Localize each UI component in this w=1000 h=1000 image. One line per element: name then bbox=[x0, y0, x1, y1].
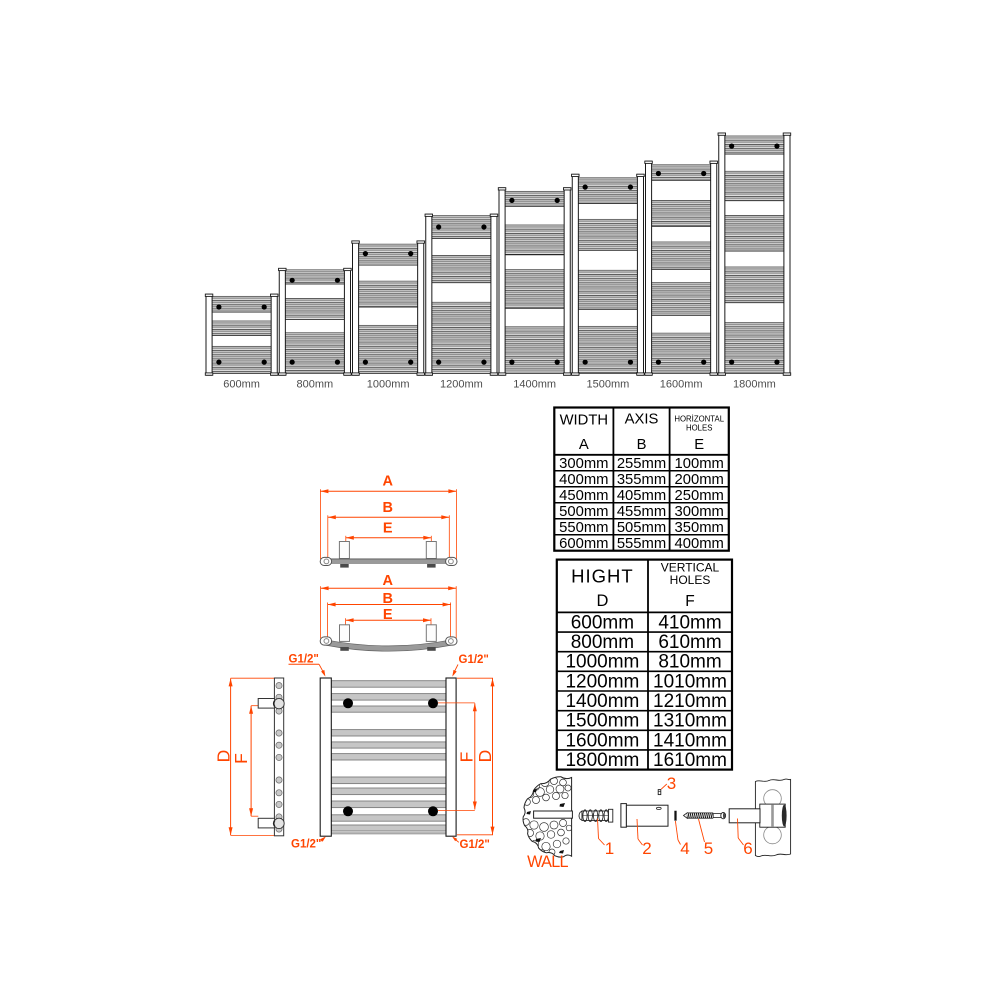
svg-text:3: 3 bbox=[667, 774, 676, 793]
svg-text:505mm: 505mm bbox=[617, 520, 666, 536]
svg-text:810mm: 810mm bbox=[658, 652, 721, 673]
svg-text:1500mm: 1500mm bbox=[565, 711, 639, 732]
svg-text:455mm: 455mm bbox=[617, 504, 666, 520]
svg-text:400mm: 400mm bbox=[675, 536, 724, 552]
svg-text:D: D bbox=[596, 592, 608, 610]
svg-text:355mm: 355mm bbox=[617, 472, 666, 488]
svg-text:400mm: 400mm bbox=[559, 472, 608, 488]
svg-text:AXIS: AXIS bbox=[625, 412, 659, 428]
svg-text:600mm: 600mm bbox=[223, 379, 260, 391]
svg-text:A: A bbox=[382, 474, 393, 490]
svg-text:800mm: 800mm bbox=[571, 632, 634, 653]
svg-text:500mm: 500mm bbox=[559, 504, 608, 520]
svg-text:B: B bbox=[382, 500, 392, 516]
svg-text:WIDTH: WIDTH bbox=[560, 413, 609, 429]
svg-text:F: F bbox=[231, 753, 251, 764]
svg-text:G1/2": G1/2" bbox=[459, 654, 489, 666]
svg-text:550mm: 550mm bbox=[559, 520, 608, 536]
svg-text:200mm: 200mm bbox=[675, 472, 724, 488]
svg-text:HOLES: HOLES bbox=[686, 424, 712, 433]
svg-text:F: F bbox=[685, 593, 694, 610]
svg-text:G1/2": G1/2" bbox=[289, 653, 319, 665]
svg-text:405mm: 405mm bbox=[617, 488, 666, 504]
svg-text:HIGHT: HIGHT bbox=[571, 566, 634, 587]
svg-text:1410mm: 1410mm bbox=[653, 730, 727, 751]
svg-text:D: D bbox=[475, 750, 495, 763]
svg-text:255mm: 255mm bbox=[617, 456, 666, 472]
svg-text:1400mm: 1400mm bbox=[513, 379, 556, 391]
svg-text:F: F bbox=[457, 752, 477, 763]
svg-text:1200mm: 1200mm bbox=[440, 379, 483, 391]
svg-text:1210mm: 1210mm bbox=[653, 691, 727, 712]
svg-text:1800mm: 1800mm bbox=[733, 379, 776, 391]
svg-text:2: 2 bbox=[642, 839, 651, 858]
svg-text:1000mm: 1000mm bbox=[367, 379, 410, 391]
svg-text:B: B bbox=[637, 437, 647, 453]
svg-text:300mm: 300mm bbox=[559, 456, 608, 472]
svg-text:1400mm: 1400mm bbox=[565, 691, 639, 712]
svg-text:555mm: 555mm bbox=[617, 536, 666, 552]
svg-text:6: 6 bbox=[743, 839, 752, 858]
svg-text:300mm: 300mm bbox=[675, 504, 724, 520]
svg-text:350mm: 350mm bbox=[675, 520, 724, 536]
svg-text:600mm: 600mm bbox=[571, 612, 634, 633]
svg-text:1010mm: 1010mm bbox=[653, 671, 727, 692]
svg-text:A: A bbox=[579, 437, 589, 453]
svg-text:1310mm: 1310mm bbox=[653, 711, 727, 732]
svg-text:1610mm: 1610mm bbox=[653, 750, 727, 771]
svg-text:410mm: 410mm bbox=[658, 612, 721, 633]
svg-text:E: E bbox=[694, 437, 704, 453]
svg-text:E: E bbox=[383, 521, 393, 537]
svg-text:1600mm: 1600mm bbox=[565, 730, 639, 751]
svg-text:5: 5 bbox=[704, 839, 713, 858]
svg-text:1800mm: 1800mm bbox=[565, 750, 639, 771]
svg-text:G1/2": G1/2" bbox=[460, 839, 490, 851]
svg-text:800mm: 800mm bbox=[297, 379, 334, 391]
svg-text:HOLES: HOLES bbox=[670, 573, 711, 587]
svg-text:WALL: WALL bbox=[527, 853, 568, 871]
svg-text:4: 4 bbox=[680, 839, 689, 858]
svg-text:1600mm: 1600mm bbox=[660, 379, 703, 391]
svg-text:450mm: 450mm bbox=[559, 488, 608, 504]
svg-text:250mm: 250mm bbox=[675, 488, 724, 504]
svg-text:HORİZONTAL: HORİZONTAL bbox=[674, 415, 724, 424]
svg-text:600mm: 600mm bbox=[559, 536, 608, 552]
svg-text:610mm: 610mm bbox=[658, 632, 721, 653]
svg-text:A: A bbox=[382, 573, 393, 589]
svg-text:1000mm: 1000mm bbox=[565, 652, 639, 673]
svg-text:1500mm: 1500mm bbox=[586, 379, 629, 391]
svg-text:1: 1 bbox=[605, 839, 614, 858]
svg-text:100mm: 100mm bbox=[675, 456, 724, 472]
svg-text:1200mm: 1200mm bbox=[565, 671, 639, 692]
svg-text:G1/2": G1/2" bbox=[291, 839, 321, 851]
